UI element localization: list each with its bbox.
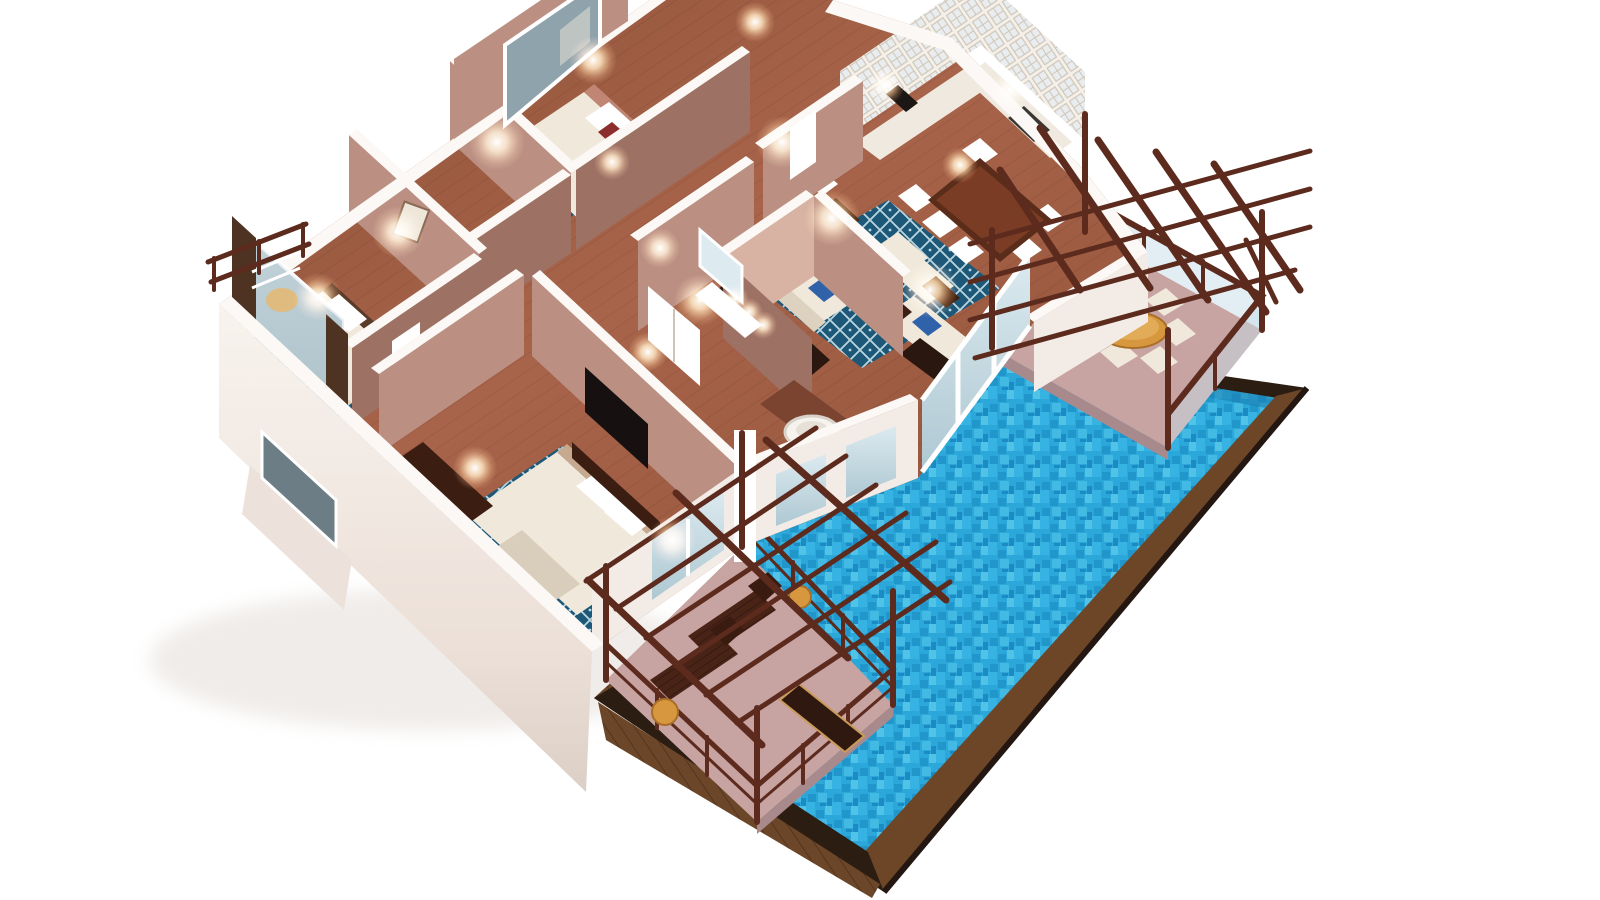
floorplan-illustration: [0, 0, 1600, 900]
table-lamp-glow: [804, 190, 860, 246]
lamp-glow: [865, 65, 905, 105]
warm-interior-glimpse: [266, 288, 298, 312]
lamp-glow: [648, 516, 696, 564]
pendant-glow: [942, 147, 978, 183]
sconce-glow: [628, 332, 668, 372]
lamp-glow: [569, 36, 617, 84]
lamp-glow: [735, 2, 775, 42]
villa-floorplan-3d-render: [0, 0, 1600, 900]
sconce-glow: [674, 274, 726, 326]
sconce-glow: [640, 228, 680, 268]
lamp-glow: [294, 273, 342, 321]
lamp-glow: [372, 206, 424, 258]
sconce-glow: [594, 144, 630, 180]
side-table-orange: [652, 699, 678, 725]
table-lamp-glow: [902, 262, 958, 318]
lamp-glow: [469, 114, 525, 170]
kitchen-glow: [990, 70, 1030, 110]
vanity-light: [749, 311, 777, 339]
lamp-glow: [756, 116, 808, 168]
lamp-glow: [453, 446, 497, 490]
